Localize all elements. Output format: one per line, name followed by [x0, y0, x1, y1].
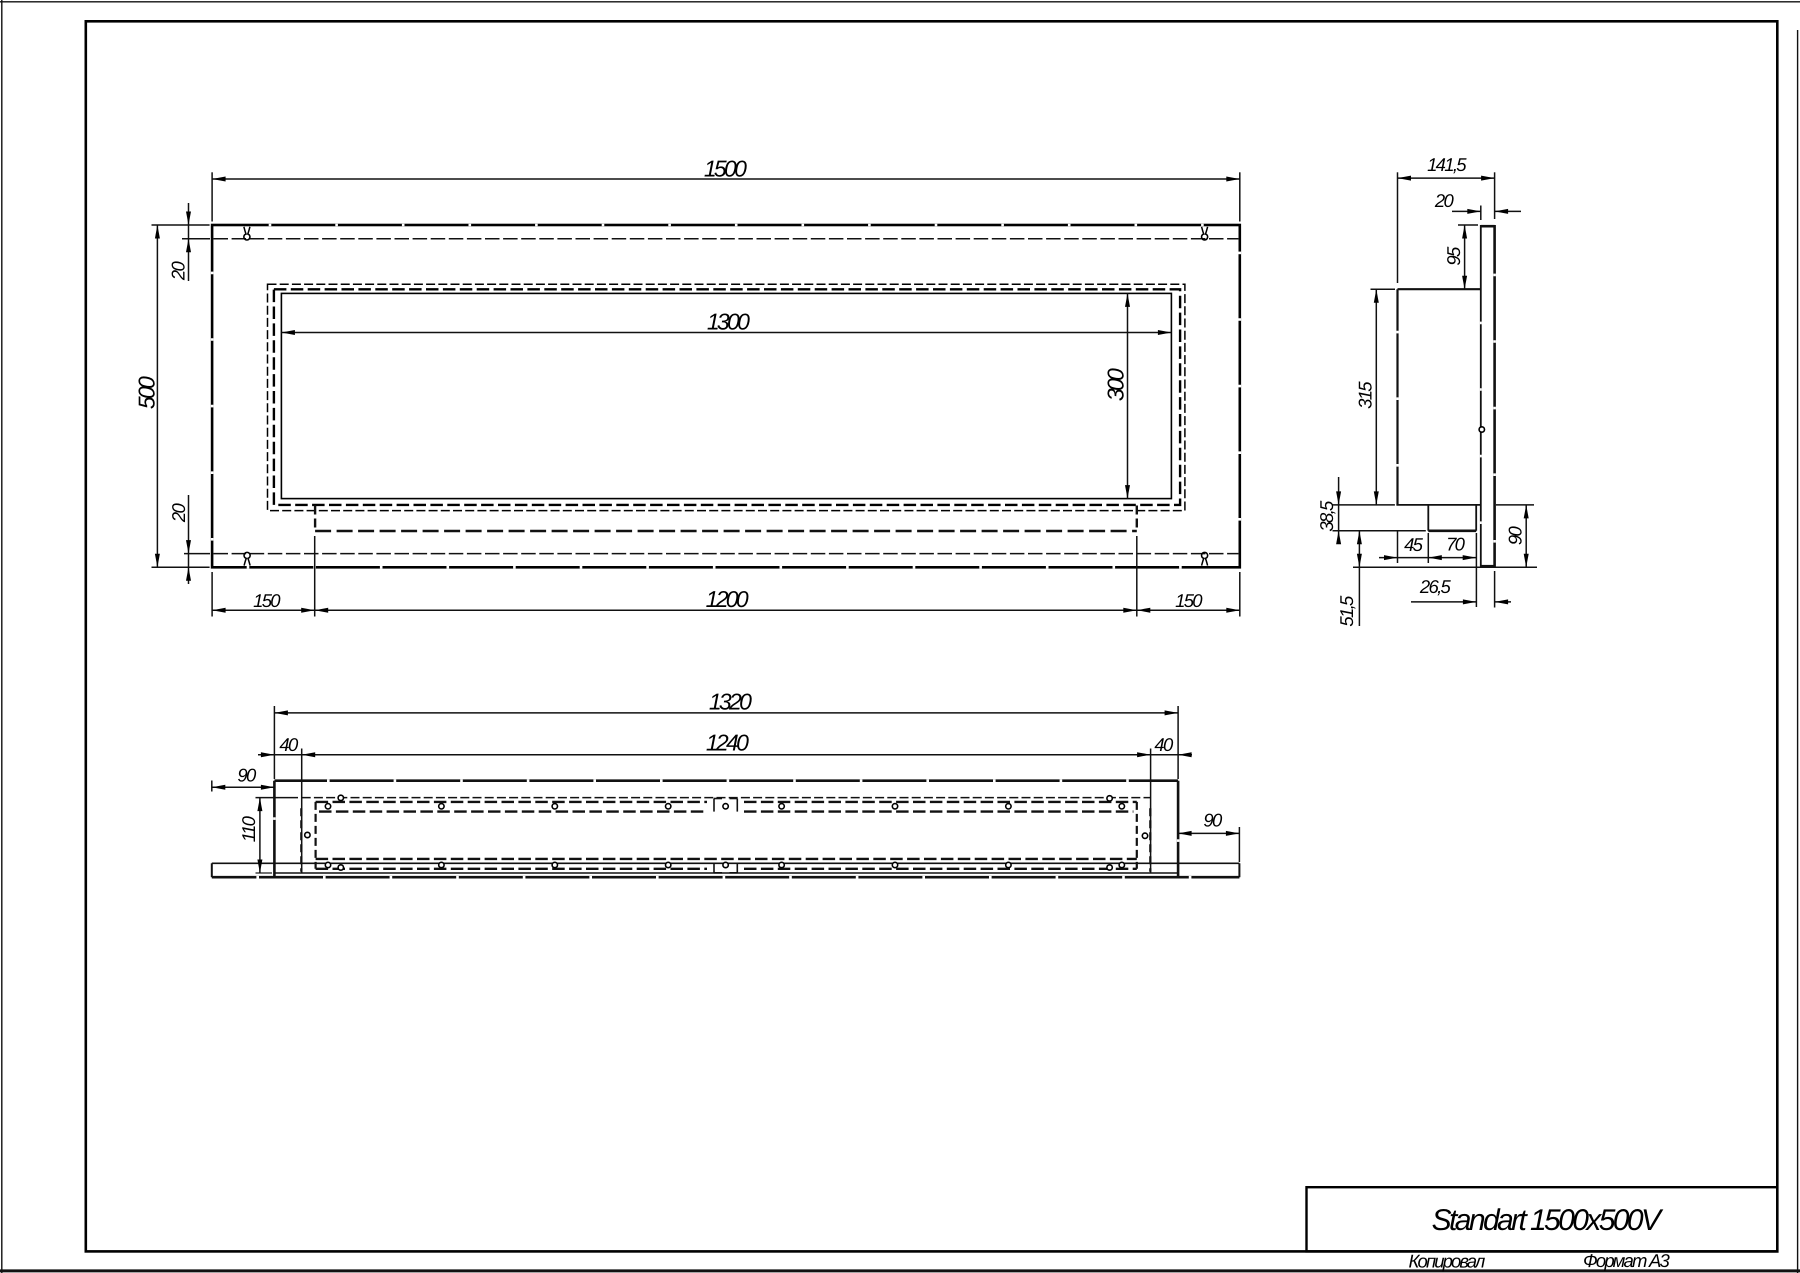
svg-text:90: 90 — [1203, 810, 1223, 831]
svg-text:1300: 1300 — [707, 309, 750, 335]
svg-text:141,5: 141,5 — [1427, 154, 1467, 175]
svg-text:38,5: 38,5 — [1316, 500, 1337, 532]
svg-text:Standart 1500x500V: Standart 1500x500V — [1432, 1204, 1664, 1237]
svg-text:315: 315 — [1355, 381, 1376, 409]
svg-text:150: 150 — [253, 590, 281, 611]
svg-text:110: 110 — [238, 815, 259, 842]
svg-text:150: 150 — [1175, 590, 1203, 611]
svg-text:90: 90 — [237, 765, 257, 786]
svg-text:20: 20 — [1434, 190, 1455, 211]
svg-text:40: 40 — [279, 734, 299, 755]
svg-text:20: 20 — [168, 503, 189, 524]
svg-text:95: 95 — [1443, 246, 1464, 266]
svg-text:500: 500 — [134, 376, 160, 409]
svg-text:Формат А3: Формат А3 — [1583, 1250, 1671, 1271]
svg-text:Копировал: Копировал — [1409, 1251, 1486, 1272]
svg-text:1500: 1500 — [704, 156, 747, 182]
svg-text:26,5: 26,5 — [1419, 576, 1452, 597]
svg-text:300: 300 — [1103, 368, 1129, 401]
svg-text:90: 90 — [1505, 526, 1526, 546]
svg-text:40: 40 — [1154, 734, 1174, 755]
svg-text:1200: 1200 — [706, 586, 749, 612]
svg-text:1320: 1320 — [709, 689, 752, 715]
svg-text:51,5: 51,5 — [1336, 595, 1357, 627]
svg-text:20: 20 — [168, 261, 189, 282]
svg-text:45: 45 — [1404, 534, 1424, 555]
svg-text:1240: 1240 — [706, 730, 749, 756]
svg-text:70: 70 — [1446, 534, 1466, 555]
